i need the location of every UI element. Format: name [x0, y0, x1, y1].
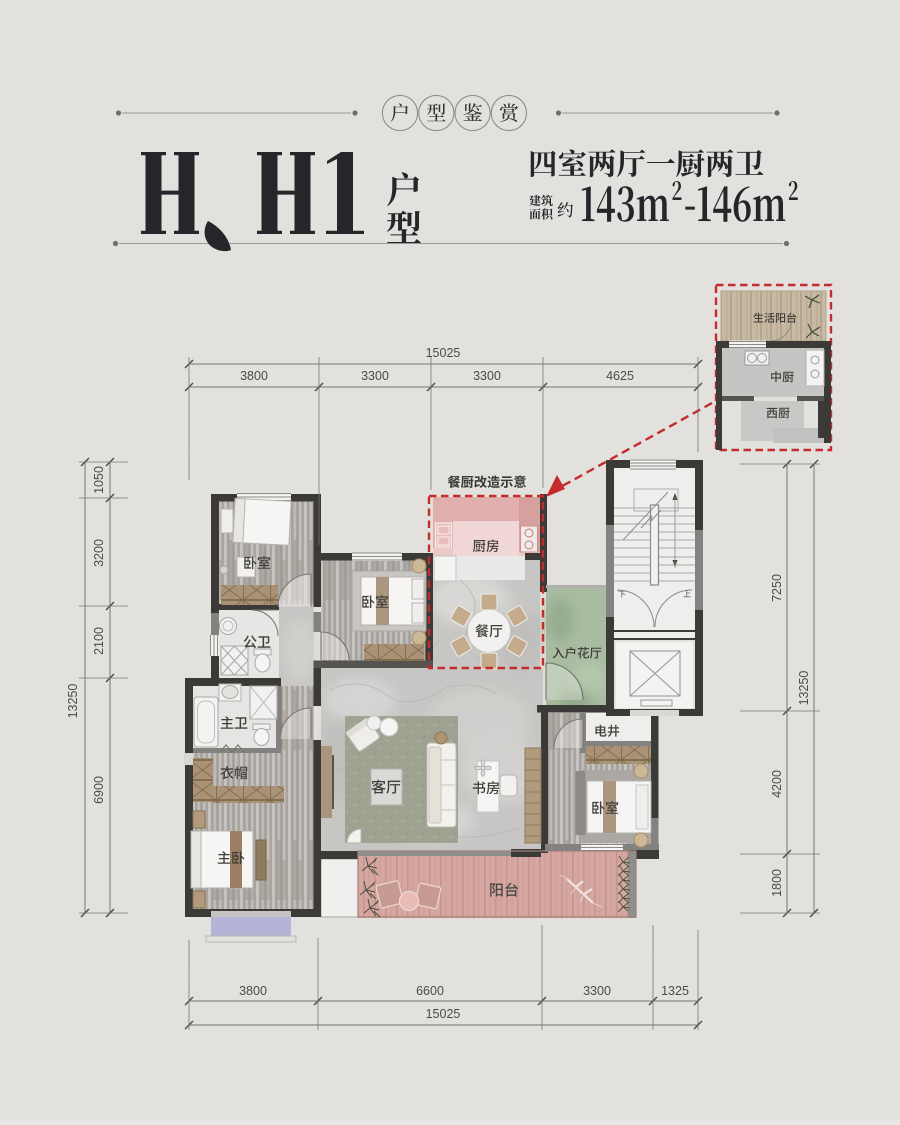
- svg-text:13250: 13250: [66, 684, 80, 719]
- svg-text:3800: 3800: [239, 984, 267, 998]
- svg-text:4200: 4200: [770, 770, 784, 798]
- svg-text:6900: 6900: [92, 776, 106, 804]
- svg-text:3300: 3300: [361, 369, 389, 383]
- svg-text:3200: 3200: [92, 539, 106, 567]
- svg-text:15025: 15025: [426, 1007, 461, 1021]
- svg-text:6600: 6600: [416, 984, 444, 998]
- svg-text:4625: 4625: [606, 369, 634, 383]
- svg-text:3300: 3300: [473, 369, 501, 383]
- svg-text:2100: 2100: [92, 627, 106, 655]
- svg-text:7250: 7250: [770, 574, 784, 602]
- svg-text:13250: 13250: [797, 671, 811, 706]
- svg-text:1325: 1325: [661, 984, 689, 998]
- svg-text:1800: 1800: [770, 869, 784, 897]
- svg-text:1050: 1050: [92, 466, 106, 494]
- svg-text:3300: 3300: [583, 984, 611, 998]
- svg-text:3800: 3800: [240, 369, 268, 383]
